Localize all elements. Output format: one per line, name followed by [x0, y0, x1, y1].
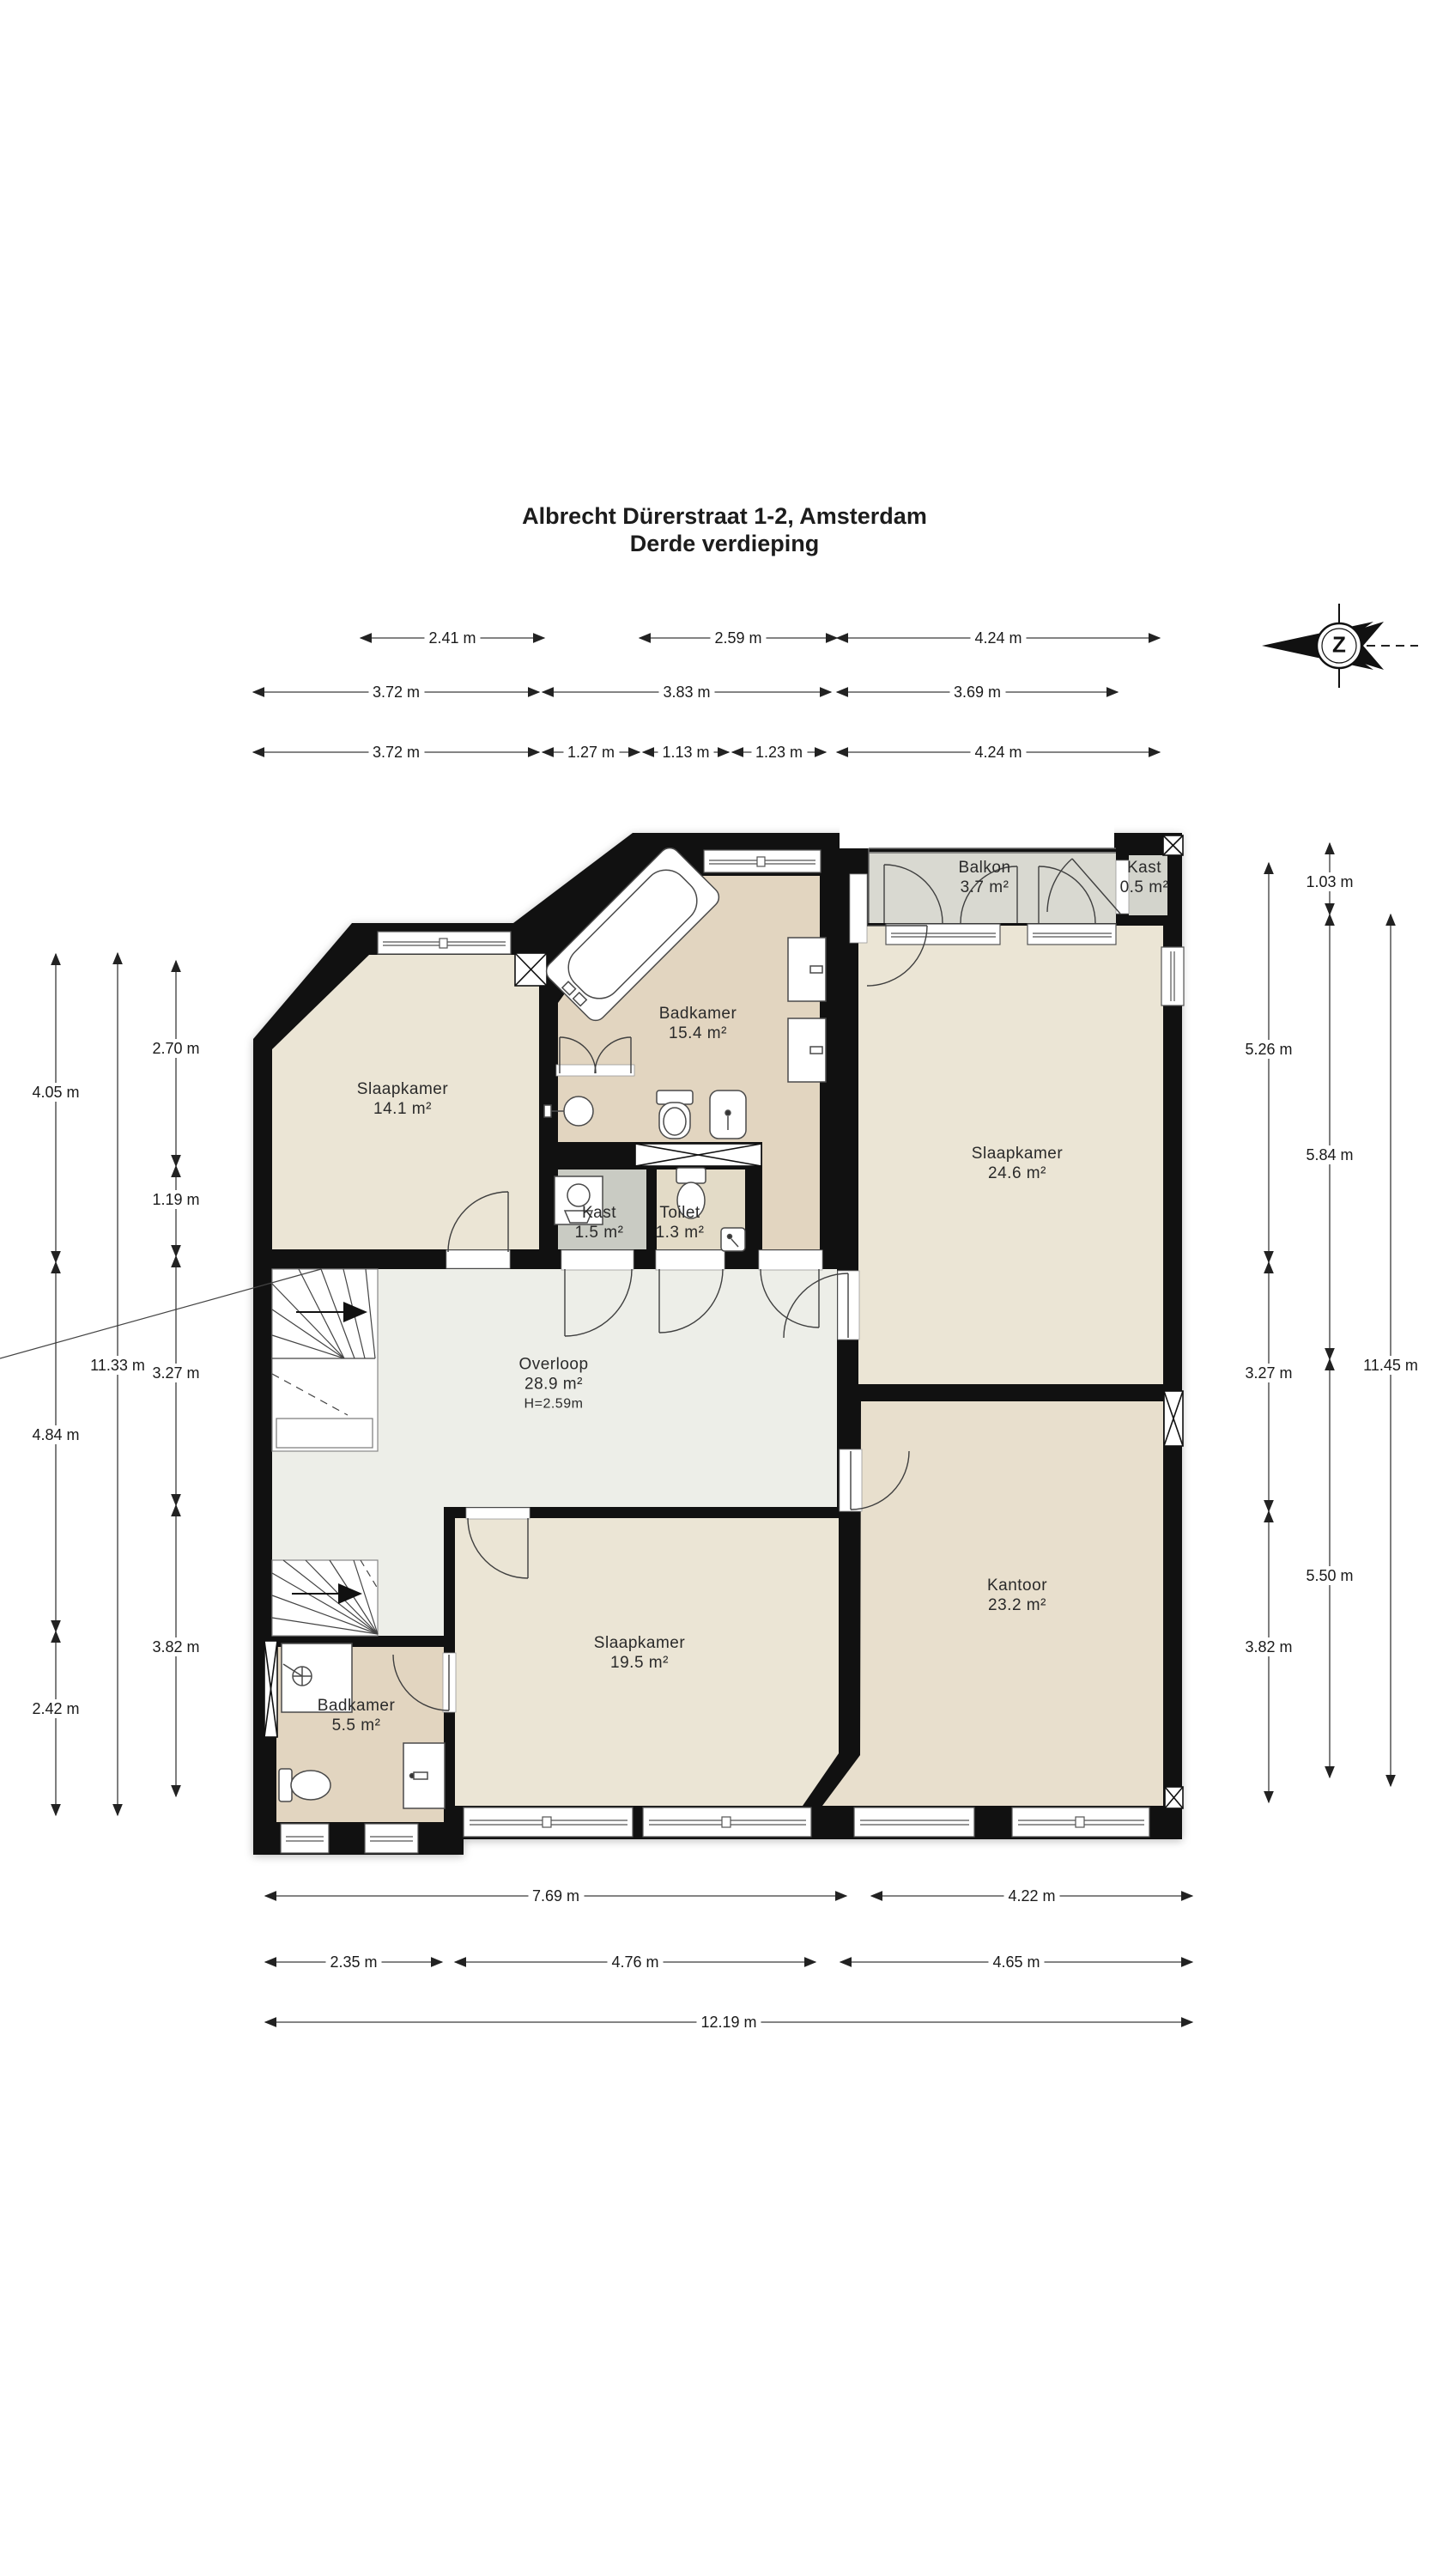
dim-label-left_inner-0: 2.70 m — [148, 1039, 203, 1058]
dim-label-top_row3-2: 1.13 m — [658, 743, 713, 762]
room-ceiling-height: H=2.59m — [518, 1394, 588, 1414]
dim-label-top_row3-3: 1.23 m — [751, 743, 807, 762]
dim-label-top_row3-0: 3.72 m — [368, 743, 424, 762]
compass-north-letter: Z — [1332, 631, 1346, 658]
room-label-kantoor: Kantoor23.2 m² — [987, 1576, 1047, 1615]
room-name: Badkamer — [659, 1004, 737, 1024]
shaft-kast05-top — [1163, 835, 1183, 855]
room-name: Kast — [1120, 858, 1169, 878]
room-label-balkon: Balkon3.7 m² — [958, 858, 1010, 897]
window-slaapkamer14-top — [378, 932, 511, 954]
dim-label-left_inner-3: 3.82 m — [148, 1637, 203, 1656]
dim-label-top_row1-0: 2.41 m — [424, 629, 480, 647]
dim-label-left_outer-1: 4.84 m — [27, 1425, 83, 1444]
room-label-overloop: Overloop28.9 m²H=2.59m — [518, 1355, 588, 1414]
staircase-main — [0, 1269, 378, 1451]
bidet-badkamer — [710, 1091, 746, 1139]
room-area: 15.4 m² — [659, 1024, 737, 1043]
dim-label-bottom_row2-2: 4.65 m — [988, 1953, 1044, 1971]
window-balkon-right — [1028, 924, 1116, 945]
room-area: 1.3 m² — [656, 1223, 705, 1242]
room-area: 3.7 m² — [958, 878, 1010, 897]
room-label-badkamer-55: Badkamer5.5 m² — [318, 1696, 396, 1735]
room-label-badkamer-15: Badkamer15.4 m² — [659, 1004, 737, 1043]
room-name: Toilet — [656, 1203, 705, 1223]
dim-label-bottom_row1-1: 4.22 m — [1003, 1886, 1059, 1905]
window-balkon-left — [886, 924, 1000, 945]
room-name: Balkon — [958, 858, 1010, 878]
dim-label-left_inner-1: 1.19 m — [148, 1190, 203, 1209]
floorplan-drawing — [0, 0, 1449, 2576]
wall-cabinet-sink-2 — [788, 1018, 826, 1082]
room-name: Slaapkamer — [594, 1633, 685, 1653]
room-area: 19.5 m² — [594, 1653, 685, 1673]
room-area: 0.5 m² — [1120, 878, 1169, 897]
dim-label-top_row1-1: 2.59 m — [710, 629, 766, 647]
toilet-badkamer55 — [279, 1769, 330, 1801]
dim-label-bottom_row3-0: 12.19 m — [696, 2013, 761, 2032]
room-label-toilet: Toilet1.3 m² — [656, 1203, 705, 1242]
room-area: 23.2 m² — [987, 1595, 1047, 1615]
room-name: Kast — [575, 1203, 624, 1223]
dim-label-top_row2-1: 3.83 m — [658, 683, 714, 702]
dim-label-top_row1-2: 4.24 m — [970, 629, 1026, 647]
dim-label-right_inner-2: 3.82 m — [1240, 1637, 1296, 1656]
dim-label-right_middle-2: 5.50 m — [1301, 1566, 1357, 1585]
room-fills — [272, 852, 1167, 1822]
room-name: Slaapkamer — [972, 1144, 1063, 1163]
room-name: Kantoor — [987, 1576, 1047, 1595]
balcony-rail-gap — [840, 817, 1114, 848]
floorplan-page: Albrecht Dürerstraat 1-2, Amsterdam Derd… — [0, 0, 1449, 2576]
room-label-kast-15: Kast1.5 m² — [575, 1203, 624, 1242]
sink-cabinet-badkamer55 — [403, 1743, 445, 1808]
dim-label-right_middle-0: 1.03 m — [1301, 872, 1357, 891]
room-name: Badkamer — [318, 1696, 396, 1716]
shaft-kantoor-right — [1164, 1391, 1183, 1446]
dim-label-bottom_row2-0: 2.35 m — [325, 1953, 381, 1971]
dim-label-left_outer-2: 2.42 m — [27, 1699, 83, 1718]
window-slaapkamer24-right — [1161, 947, 1184, 1005]
dim-label-right_middle-1: 5.84 m — [1301, 1145, 1357, 1164]
staircase-secondary — [272, 1560, 378, 1636]
room-area: 1.5 m² — [575, 1223, 624, 1242]
room-area: 5.5 m² — [318, 1716, 396, 1735]
room-area: 24.6 m² — [972, 1163, 1063, 1183]
room-area: 28.9 m² — [518, 1375, 588, 1394]
shaft-above-toilet — [635, 1144, 761, 1166]
dim-label-top_row3-1: 1.27 m — [563, 743, 619, 762]
fountain-sink-wc — [721, 1228, 745, 1251]
dim-label-top_row2-0: 3.72 m — [368, 683, 424, 702]
dim-label-top_row3-4: 4.24 m — [970, 743, 1026, 762]
room-label-kast-05: Kast0.5 m² — [1120, 858, 1169, 897]
room-label-slaapkamer-19: Slaapkamer19.5 m² — [594, 1633, 685, 1673]
room-label-slaapkamer-14: Slaapkamer14.1 m² — [357, 1079, 448, 1119]
shaft-kantoor-corner — [1165, 1787, 1183, 1808]
window-badkamer-top — [704, 850, 821, 872]
shaft-badkamer55-wall — [264, 1641, 277, 1737]
room-label-slaapkamer-24: Slaapkamer24.6 m² — [972, 1144, 1063, 1183]
room-name: Overloop — [518, 1355, 588, 1375]
dim-label-bottom_row2-1: 4.76 m — [607, 1953, 663, 1971]
dim-label-left_inner-2: 3.27 m — [148, 1364, 203, 1382]
dim-label-right_inner-0: 5.26 m — [1240, 1040, 1296, 1059]
room-name: Slaapkamer — [357, 1079, 448, 1099]
toilet-badkamer — [657, 1091, 693, 1139]
dim-label-left_middle-0: 11.33 m — [86, 1356, 149, 1375]
dim-label-left_outer-0: 4.05 m — [27, 1083, 83, 1102]
dim-label-bottom_row1-0: 7.69 m — [528, 1886, 584, 1905]
room-area: 14.1 m² — [357, 1099, 448, 1119]
wall-cabinet-sink-1 — [788, 938, 826, 1001]
dim-label-right_outer-0: 11.45 m — [1359, 1356, 1422, 1375]
dim-label-top_row2-2: 3.69 m — [949, 683, 1005, 702]
dim-label-right_inner-1: 3.27 m — [1240, 1364, 1296, 1382]
shaft-slaapkamer14-corner — [515, 953, 547, 986]
